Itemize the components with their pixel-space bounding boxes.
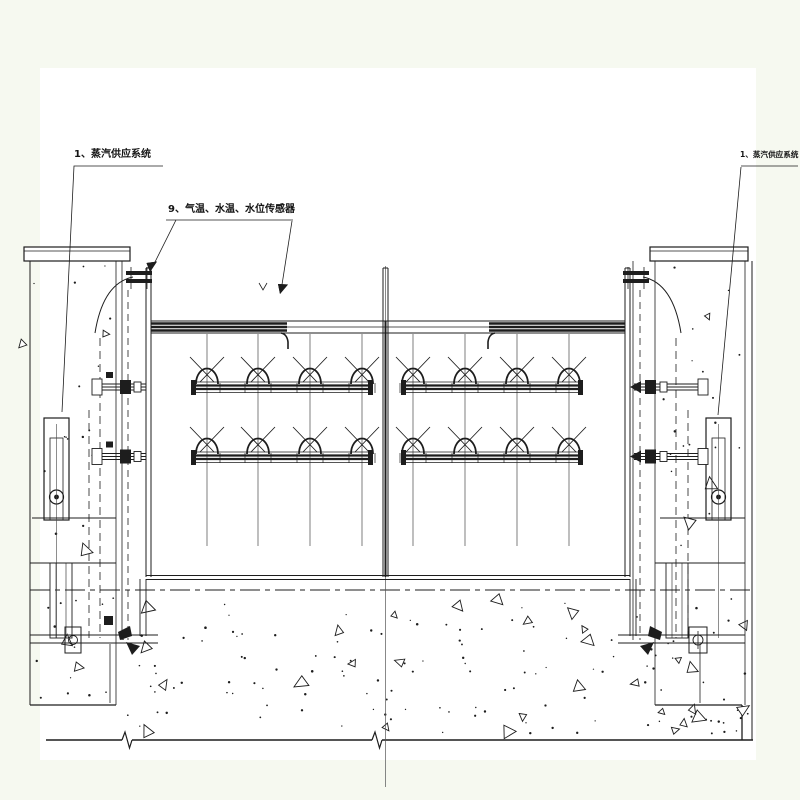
concrete-dot: [702, 371, 704, 373]
concrete-dot: [564, 603, 565, 604]
concrete-dot: [98, 366, 99, 367]
bolt-head: [120, 450, 131, 464]
dwg-rect: [134, 382, 141, 392]
concrete-dot: [738, 447, 740, 449]
concrete-dot: [139, 726, 140, 727]
concrete-dot: [683, 445, 685, 447]
concrete-dot: [236, 636, 237, 637]
bolt-head: [120, 380, 131, 394]
concrete-dot: [611, 639, 613, 641]
concrete-dot: [366, 693, 367, 694]
concrete-dot: [523, 650, 525, 652]
concrete-dot: [730, 598, 732, 600]
concrete-dot: [663, 398, 665, 400]
concrete-dot: [154, 665, 156, 667]
concrete-dot: [712, 397, 714, 399]
concrete-dot: [474, 715, 476, 717]
concrete-dot: [691, 360, 692, 361]
concrete-dot: [334, 656, 336, 658]
concrete-dot: [266, 704, 268, 706]
concrete-dot: [228, 681, 230, 683]
concrete-dot: [601, 671, 603, 673]
concrete-dot: [475, 707, 476, 708]
concrete-dot: [104, 265, 105, 266]
concrete-dot: [224, 604, 225, 605]
concrete-dot: [521, 607, 522, 608]
concrete-dot: [53, 625, 56, 628]
concrete-dot: [529, 732, 531, 734]
concrete-dot: [462, 657, 464, 659]
concrete-dot: [636, 616, 638, 618]
concrete-dot: [695, 607, 698, 610]
left-pier-cap: [24, 247, 130, 261]
concrete-dot: [154, 691, 156, 693]
concrete-dot: [82, 436, 84, 438]
concrete-dot: [181, 682, 183, 684]
concrete-dot: [713, 632, 715, 634]
concrete-dot: [241, 656, 243, 658]
concrete-dot: [747, 713, 749, 715]
concrete-dot: [469, 670, 471, 672]
concrete-dot: [244, 657, 246, 659]
concrete-dot: [380, 633, 382, 635]
concrete-dot: [139, 665, 141, 667]
concrete-dot: [594, 720, 595, 721]
concrete-dot: [386, 699, 388, 701]
engineering-drawing-canvas: 1、蒸汽供应系统 9、气温、水温、水位传感器 1、蒸汽供应系统: [0, 0, 800, 800]
concrete-dot: [404, 662, 406, 664]
concrete-dot: [315, 655, 317, 657]
concrete-dot: [102, 603, 104, 605]
dwg-rect: [126, 279, 152, 283]
anchor-plate: [92, 449, 102, 465]
dwg-rect: [106, 442, 113, 448]
concrete-dot: [422, 660, 423, 661]
concrete-dot: [646, 665, 647, 666]
concrete-dot: [459, 639, 461, 641]
concrete-dot: [673, 640, 675, 642]
dwg-rect: [106, 372, 113, 378]
concrete-dot: [448, 711, 450, 713]
concrete-dot: [690, 716, 692, 718]
concrete-dot: [481, 628, 483, 630]
concrete-dot: [511, 619, 513, 621]
concrete-dot: [652, 667, 654, 669]
concrete-dot: [47, 607, 49, 609]
concrete-dot: [88, 694, 91, 697]
concrete-dot: [82, 525, 84, 527]
concrete-dot: [342, 670, 344, 672]
concrete-dot: [83, 266, 85, 268]
concrete-dot: [524, 672, 526, 674]
gate-heating-section-drawing: 1、蒸汽供应系统 9、气温、水温、水位传感器 1、蒸汽供应系统: [0, 0, 800, 800]
concrete-dot: [377, 679, 379, 681]
concrete-dot: [88, 429, 90, 431]
concrete-dot: [157, 711, 159, 713]
drawing-linework: [19, 68, 798, 787]
bolt-head: [645, 450, 656, 464]
gate-top-flange-left: [126, 271, 152, 275]
concrete-dot: [67, 438, 69, 440]
concrete-dot: [36, 660, 38, 662]
concrete-dot: [33, 283, 34, 284]
concrete-dot: [204, 626, 207, 629]
concrete-dot: [337, 641, 339, 643]
concrete-dot: [112, 597, 114, 599]
concrete-dot: [390, 690, 392, 692]
concrete-dot: [127, 714, 129, 716]
aggregate-triangle: [19, 339, 27, 348]
concrete-dot: [410, 620, 411, 621]
concrete-dot: [736, 730, 738, 732]
concrete-dot: [274, 634, 276, 636]
concrete-dot: [445, 624, 447, 626]
dwg-rect: [134, 452, 141, 462]
concrete-dot: [78, 385, 80, 387]
concrete-dot: [412, 671, 414, 673]
concrete-dot: [341, 725, 342, 726]
bolt-head: [645, 380, 656, 394]
concrete-dot: [262, 688, 264, 690]
concrete-dot: [660, 689, 662, 691]
concrete-dot: [728, 290, 729, 291]
concrete-dot: [674, 430, 676, 432]
concrete-dot: [275, 668, 277, 670]
concrete-dot: [461, 644, 463, 646]
concrete-dot: [105, 691, 107, 693]
anchor-plate: [92, 379, 102, 395]
anchor-plate: [698, 379, 708, 395]
concrete-dot: [593, 669, 594, 670]
concrete-dot: [723, 722, 725, 724]
concrete-dot: [484, 710, 486, 712]
concrete-dot: [727, 620, 729, 622]
concrete-dot: [109, 317, 111, 319]
concrete-dot: [740, 717, 742, 719]
concrete-dot: [155, 673, 157, 675]
concrete-dot: [228, 615, 229, 616]
concrete-dot: [259, 717, 261, 719]
paper-sheet: [40, 68, 756, 760]
concrete-dot: [60, 602, 62, 604]
concrete-dot: [64, 436, 65, 437]
concrete-dot: [165, 712, 167, 714]
label-steam-supply-system-left: 1、蒸汽供应系统: [74, 147, 151, 160]
dwg-rect: [623, 279, 649, 283]
concrete-dot: [311, 670, 314, 673]
concrete-dot: [75, 600, 77, 602]
concrete-dot: [370, 629, 372, 631]
concrete-dot: [692, 328, 694, 330]
concrete-dot: [439, 707, 441, 709]
concrete-dot: [647, 724, 649, 726]
concrete-dot: [544, 704, 546, 706]
concrete-dot: [644, 681, 646, 683]
concrete-dot: [74, 646, 76, 648]
concrete-dot: [304, 693, 306, 695]
concrete-dot: [346, 614, 347, 615]
concrete-dot: [533, 626, 535, 628]
concrete-dot: [546, 667, 547, 668]
concrete-dot: [723, 731, 725, 733]
concrete-dot: [390, 718, 392, 720]
concrete-dot: [708, 513, 710, 515]
concrete-dot: [65, 436, 66, 437]
gate-top-flange-right: [623, 271, 649, 275]
concrete-dot: [343, 675, 345, 677]
concrete-dot: [680, 545, 682, 547]
concrete-dot: [688, 444, 690, 446]
concrete-dot: [703, 682, 705, 684]
concrete-dot: [576, 732, 578, 734]
concrete-dot: [74, 282, 76, 284]
concrete-dot: [671, 471, 673, 473]
concrete-dot: [301, 709, 303, 711]
concrete-dot: [715, 447, 717, 449]
dwg-rect: [104, 616, 113, 625]
concrete-dot: [232, 693, 233, 694]
concrete-dot: [150, 686, 152, 688]
concrete-dot: [513, 687, 515, 689]
concrete-dot: [525, 722, 526, 723]
concrete-dot: [504, 689, 506, 691]
concrete-dot: [673, 266, 675, 268]
concrete-dot: [373, 709, 374, 710]
concrete-dot: [40, 697, 42, 699]
concrete-dot: [55, 532, 58, 535]
concrete-dot: [535, 673, 536, 674]
concrete-dot: [738, 354, 740, 356]
concrete-dot: [232, 631, 234, 633]
label-steam-supply-system-right: 1、蒸汽供应系统: [740, 149, 799, 159]
anchor-plate: [698, 449, 708, 465]
concrete-dot: [241, 633, 243, 635]
concrete-dot: [405, 709, 406, 710]
concrete-dot: [464, 663, 465, 664]
concrete-dot: [723, 698, 725, 700]
concrete-dot: [584, 697, 586, 699]
label-air-water-temp-level-sensors: 9、气温、水温、水位传感器: [168, 202, 296, 215]
concrete-dot: [416, 623, 419, 626]
concrete-dot: [201, 640, 203, 642]
concrete-dot: [711, 732, 713, 734]
concrete-dot: [182, 637, 184, 639]
concrete-dot: [718, 720, 720, 722]
concrete-dot: [672, 657, 673, 658]
dwg-rect: [660, 452, 667, 462]
concrete-dot: [659, 721, 660, 722]
concrete-dot: [173, 687, 175, 689]
concrete-dot: [67, 692, 69, 694]
concrete-dot: [566, 638, 567, 639]
concrete-dot: [459, 629, 461, 631]
dwg-rect: [660, 382, 667, 392]
concrete-dot: [70, 677, 71, 678]
concrete-dot: [226, 692, 228, 694]
concrete-dot: [714, 422, 716, 424]
concrete-dot: [551, 727, 553, 729]
concrete-dot: [253, 682, 255, 684]
concrete-dot: [613, 656, 614, 657]
concrete-dot: [442, 732, 443, 733]
concrete-dot: [710, 720, 712, 722]
